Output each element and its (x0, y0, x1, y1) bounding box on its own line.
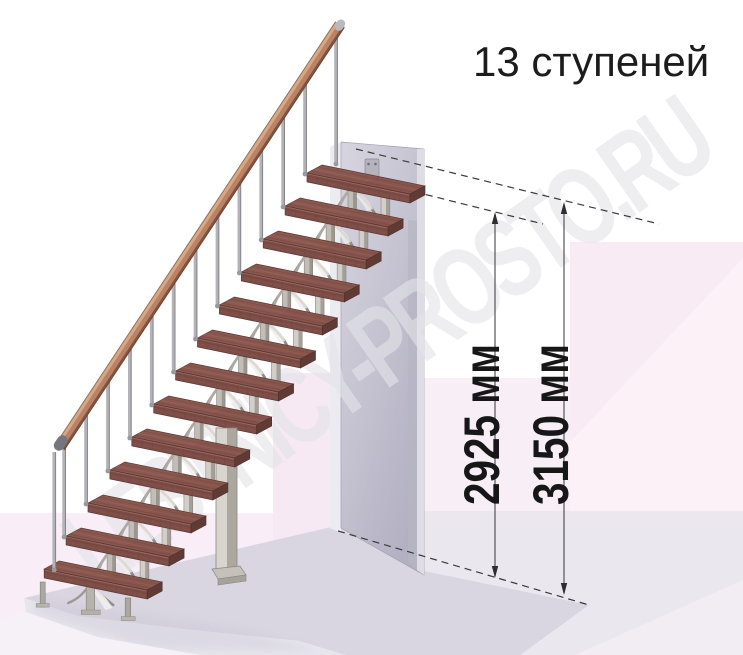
svg-text:13 ступеней: 13 ступеней (473, 38, 709, 85)
svg-text:2925 мм: 2925 мм (454, 344, 510, 505)
svg-text:3150 мм: 3150 мм (523, 344, 579, 505)
